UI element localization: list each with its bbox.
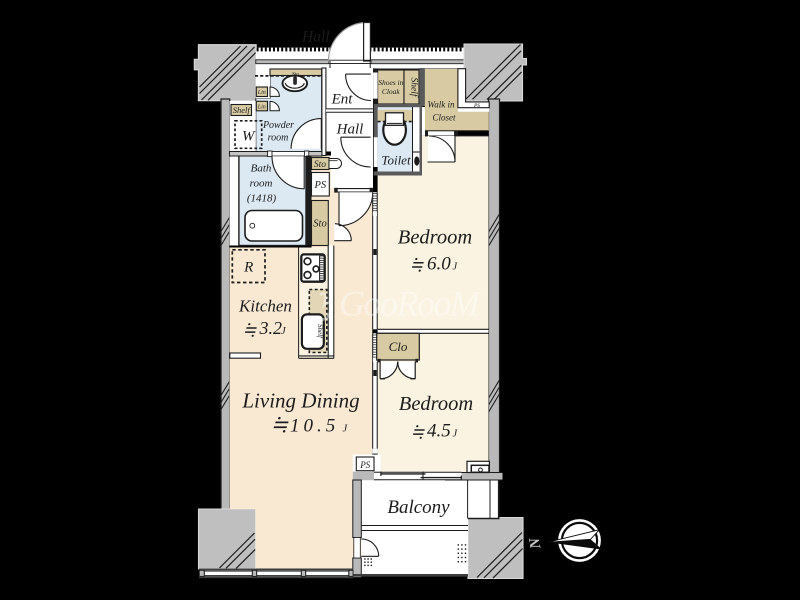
svg-text:Hall: Hall: [301, 29, 330, 46]
svg-text:PS: PS: [359, 460, 370, 470]
svg-text:W: W: [242, 129, 256, 145]
svg-text:GooRooM: GooRooM: [339, 284, 482, 324]
svg-text:Bedroom: Bedroom: [398, 227, 472, 249]
svg-text:Closet: Closet: [432, 113, 456, 123]
svg-text:Balcony: Balcony: [387, 497, 450, 518]
svg-text:4.5: 4.5: [427, 420, 451, 441]
svg-text:PS: PS: [313, 180, 326, 191]
svg-text:R: R: [243, 260, 253, 276]
svg-text:Living Dining: Living Dining: [241, 389, 359, 413]
svg-text:Hall: Hall: [336, 122, 364, 138]
svg-text:Shelf: Shelf: [233, 105, 252, 115]
svg-text:Clo: Clo: [389, 339, 408, 354]
svg-text:Lin: Lin: [257, 105, 266, 111]
svg-text:room: room: [250, 178, 273, 190]
svg-text:Bath: Bath: [251, 163, 272, 175]
svg-text:6.0: 6.0: [427, 253, 451, 274]
svg-text:Sto: Sto: [313, 219, 326, 230]
svg-text:Lin: Lin: [257, 90, 266, 96]
svg-text:Shelf: Shelf: [316, 324, 324, 339]
svg-text:Sto: Sto: [292, 72, 299, 78]
svg-text:Ent: Ent: [331, 92, 354, 108]
svg-text:Bedroom: Bedroom: [399, 393, 473, 415]
svg-text:(1418): (1418): [247, 193, 277, 205]
svg-text:3.2: 3.2: [259, 318, 283, 338]
svg-text:PS: PS: [473, 103, 480, 109]
svg-text:Toilet: Toilet: [381, 153, 411, 168]
svg-text:10.5: 10.5: [290, 416, 339, 437]
svg-text:Walk in: Walk in: [428, 100, 455, 110]
svg-text:Sto: Sto: [314, 160, 326, 170]
svg-text:Shelf: Shelf: [409, 78, 420, 98]
svg-text:Shoes in: Shoes in: [378, 78, 403, 87]
svg-text:Kitchen: Kitchen: [238, 297, 292, 316]
svg-text:room: room: [268, 133, 289, 144]
svg-text:Cloak: Cloak: [382, 87, 401, 96]
svg-text:Powder: Powder: [262, 120, 294, 131]
